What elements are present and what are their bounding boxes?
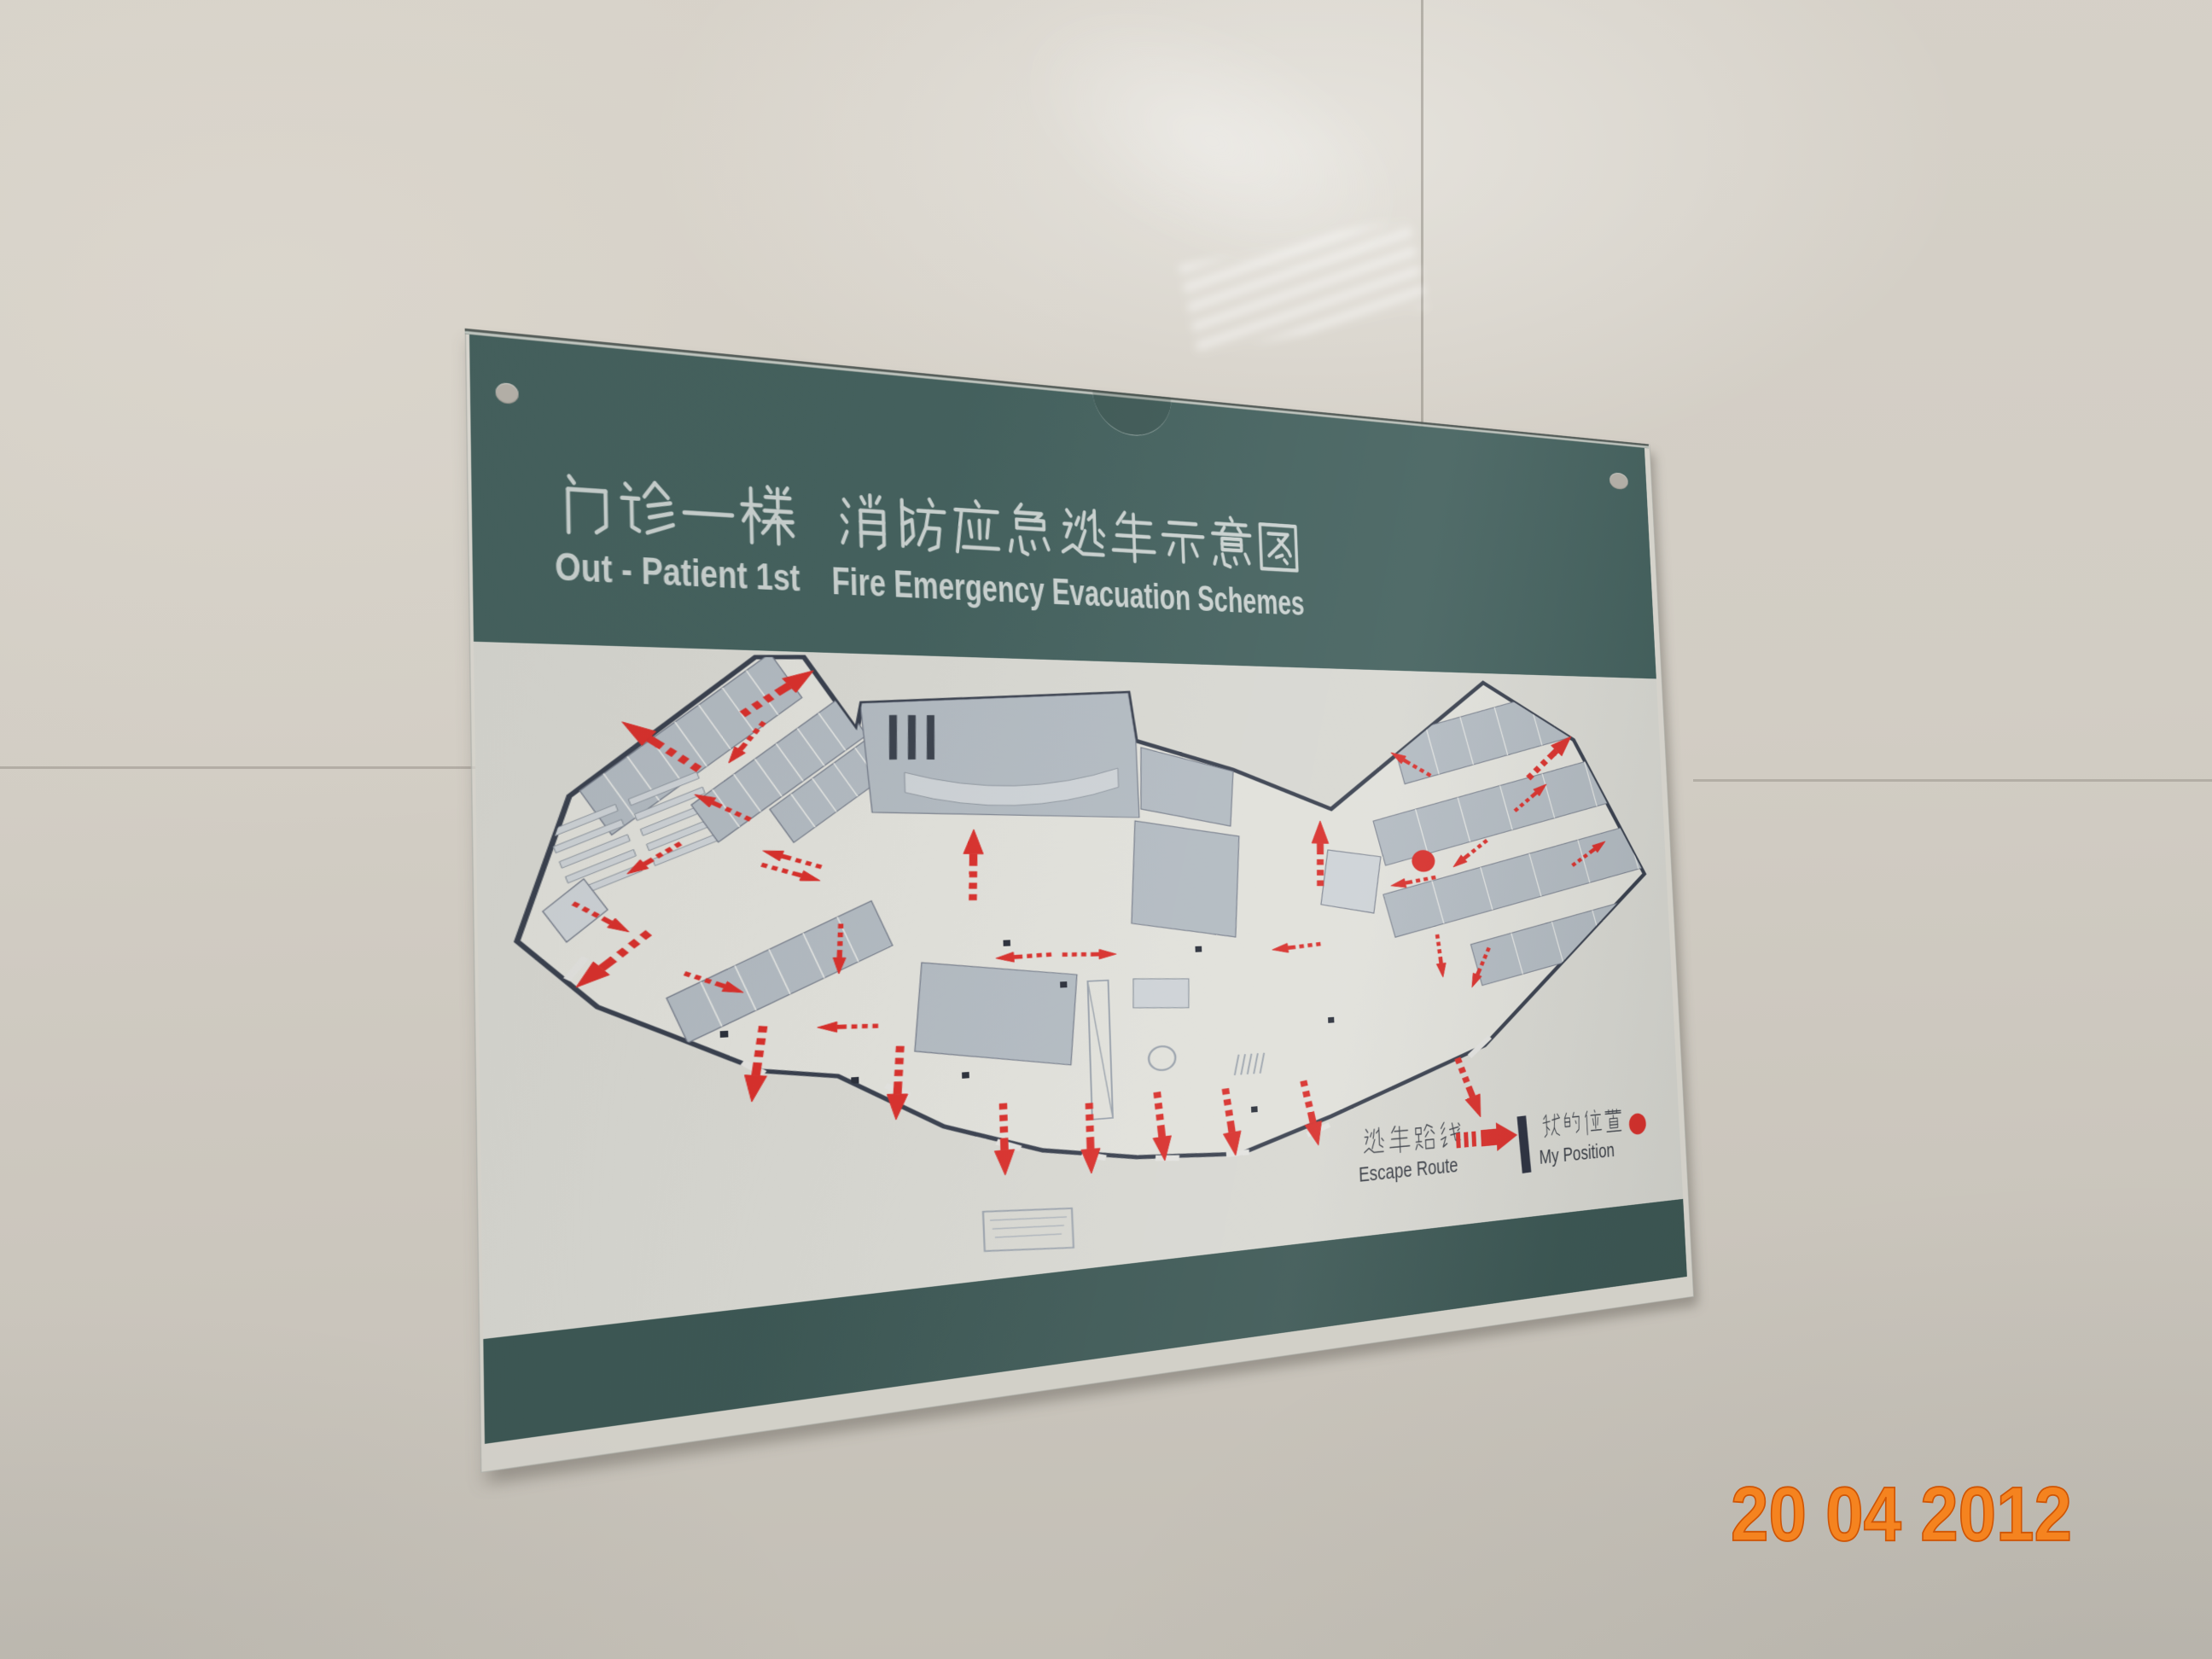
- svg-text:20 04 2012: 20 04 2012: [1731, 1472, 2072, 1554]
